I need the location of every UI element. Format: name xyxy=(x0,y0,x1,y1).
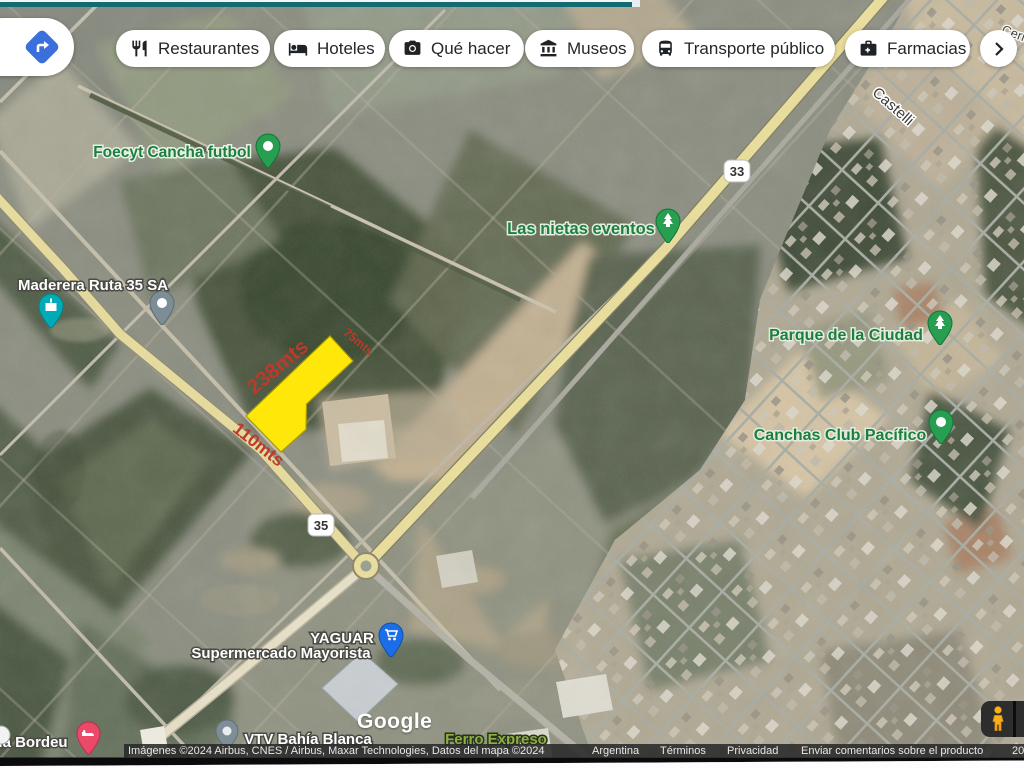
svg-text:Parque de la Ciudad: Parque de la Ciudad xyxy=(769,327,923,344)
svg-text:Canchas Club Pacífico: Canchas Club Pacífico xyxy=(754,427,927,444)
svg-text:Foecyt Cancha futbol: Foecyt Cancha futbol xyxy=(93,144,251,161)
svg-text:Las nietas eventos: Las nietas eventos xyxy=(507,220,655,238)
svg-text:Google: Google xyxy=(357,710,432,733)
svg-text:Maderera Ruta 35 SA: Maderera Ruta 35 SA xyxy=(18,277,168,294)
svg-text:33: 33 xyxy=(730,164,744,179)
svg-text:35: 35 xyxy=(314,518,328,533)
svg-text:Supermercado Mayorista: Supermercado Mayorista xyxy=(191,645,371,662)
